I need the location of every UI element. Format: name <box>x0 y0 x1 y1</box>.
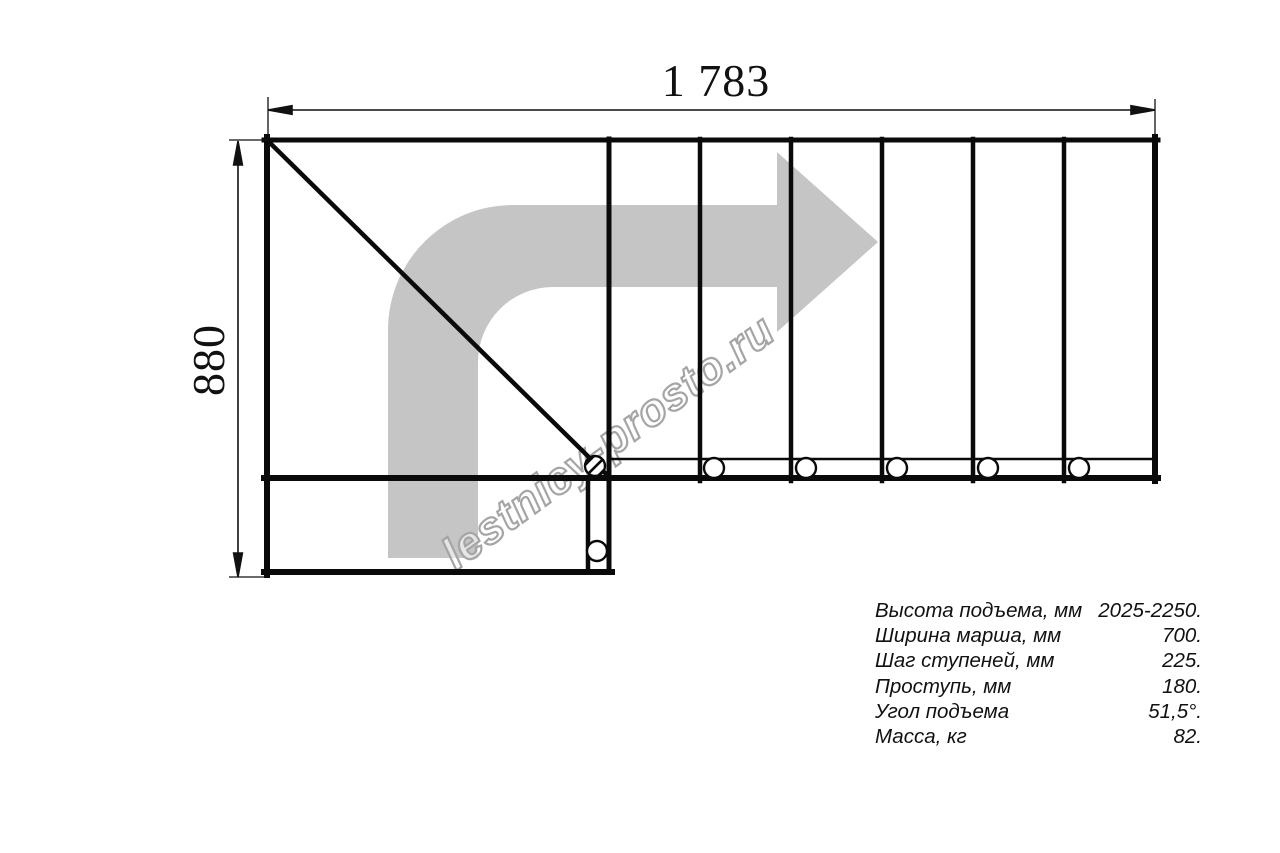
spec-row: Проступь, мм 180. <box>875 674 1202 699</box>
fastener-hole <box>887 458 907 478</box>
spec-label: Угол подъема <box>875 699 1009 724</box>
spec-row: Шаг ступеней, мм 225. <box>875 648 1202 673</box>
fastener-hole <box>704 458 724 478</box>
spec-label: Проступь, мм <box>875 674 1011 699</box>
spec-row: Ширина марша, мм 700. <box>875 623 1202 648</box>
spec-value: 180. <box>1162 674 1202 699</box>
fastener-hole <box>1069 458 1089 478</box>
height-dimension-label: 880 <box>183 324 234 396</box>
width-dimension-label: 1 783 <box>662 55 771 106</box>
stair-drawing-page: { "drawing": { "width_dim": "1 783", "he… <box>0 0 1280 853</box>
spec-value: 2025-2250. <box>1098 598 1202 623</box>
spec-value: 225. <box>1162 648 1202 673</box>
spec-value: 700. <box>1162 623 1202 648</box>
dim-arrow-up <box>234 141 243 165</box>
spec-label: Масса, кг <box>875 724 967 749</box>
fastener-holes <box>585 456 1089 561</box>
fastener-hole <box>796 458 816 478</box>
dim-arrow-down <box>234 553 243 577</box>
fastener-hole <box>587 541 607 561</box>
fastener-hole <box>978 458 998 478</box>
spec-row: Масса, кг 82. <box>875 724 1202 749</box>
spec-value: 82. <box>1174 724 1203 749</box>
spec-label: Ширина марша, мм <box>875 623 1061 648</box>
dim-arrow-right <box>1131 106 1155 115</box>
spec-label: Шаг ступеней, мм <box>875 648 1054 673</box>
spec-table: Высота подъема, мм 2025-2250. Ширина мар… <box>875 598 1202 749</box>
spec-row: Высота подъема, мм 2025-2250. <box>875 598 1202 623</box>
dimension-lines <box>229 97 1155 577</box>
dim-arrow-left <box>268 106 292 115</box>
spec-value: 51,5°. <box>1148 699 1202 724</box>
spec-label: Высота подъема, мм <box>875 598 1082 623</box>
spec-row: Угол подъема 51,5°. <box>875 699 1202 724</box>
direction-arrow <box>388 152 878 558</box>
